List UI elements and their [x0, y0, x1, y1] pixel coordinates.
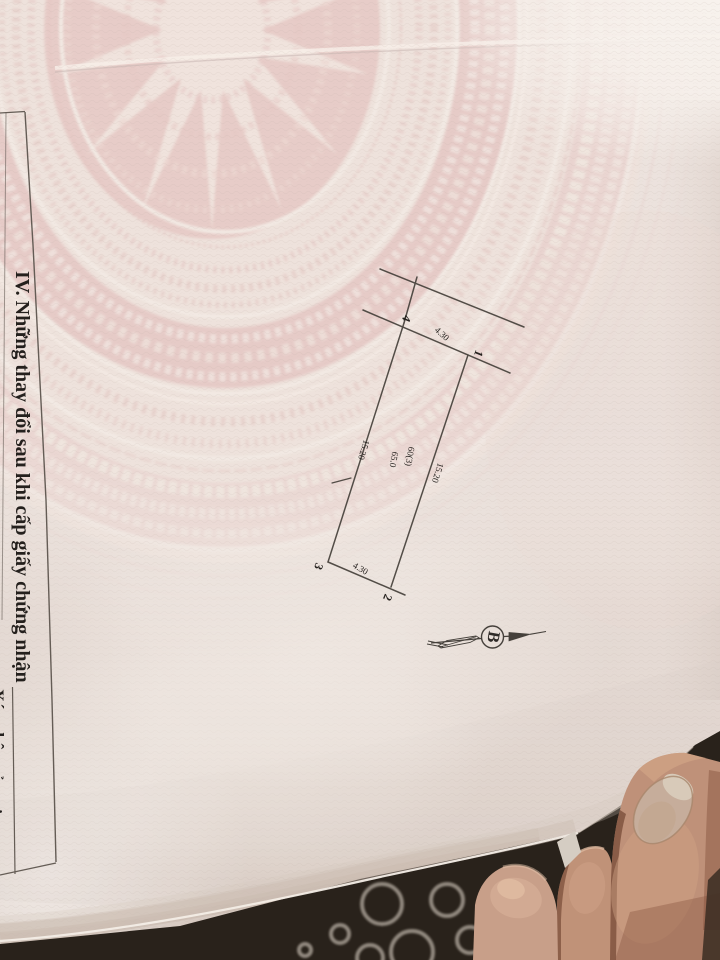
svg-text:IV. Những thay đổi sau khi cấp: IV. Những thay đổi sau khi cấp giấy chứn…	[11, 271, 33, 683]
svg-text:Xác nhận của cơ: Xác nhận của cơ	[0, 689, 8, 813]
